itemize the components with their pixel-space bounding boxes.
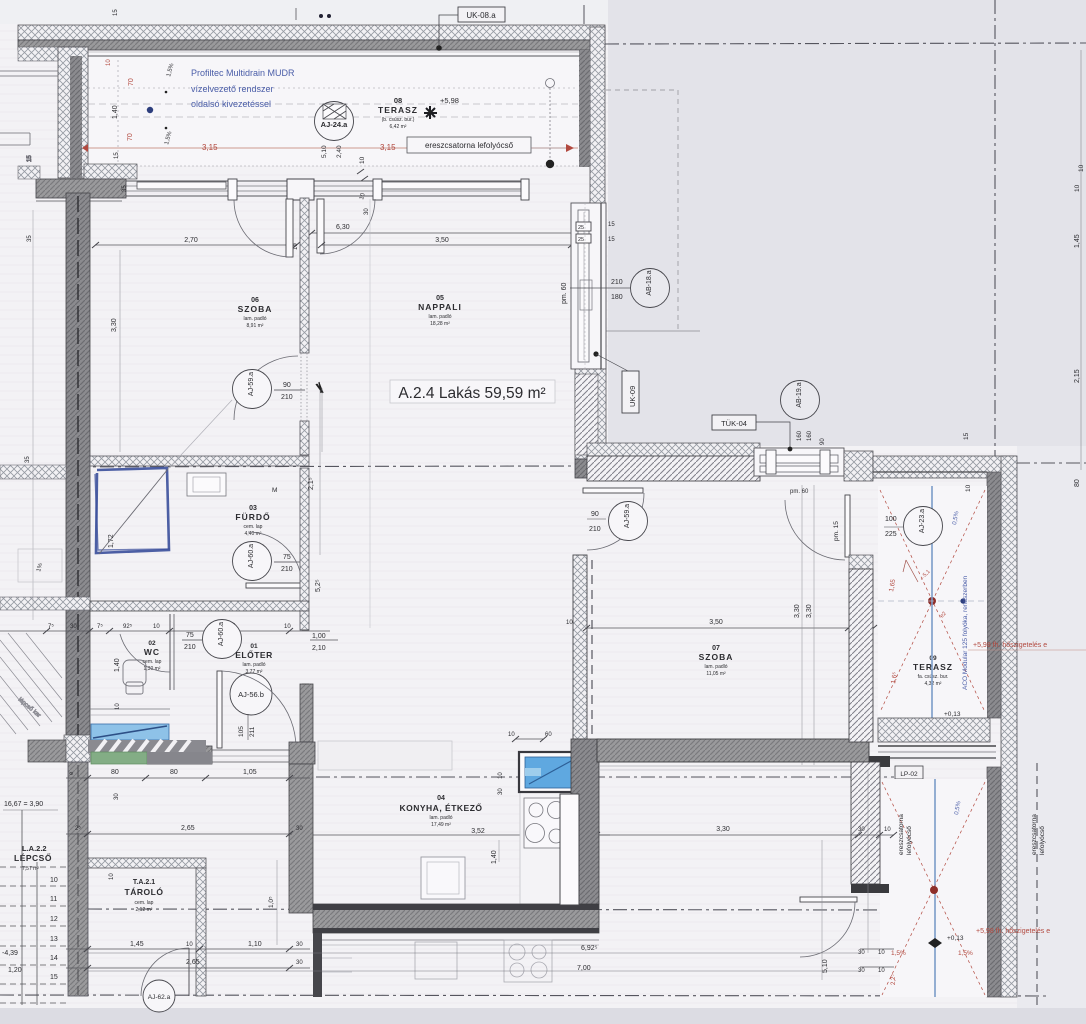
svg-text:10: 10 [878,950,885,956]
svg-text:T.A.2.1: T.A.2.1 [133,879,155,886]
svg-text:1,40: 1,40 [114,658,121,672]
svg-text:TERASZ: TERASZ [378,105,418,115]
svg-text:02: 02 [148,640,156,647]
svg-text:2,65: 2,65 [186,959,200,966]
svg-text:SZOBA: SZOBA [699,652,734,662]
svg-text:ELŐTER: ELŐTER [235,649,272,660]
svg-text:100: 100 [885,516,897,523]
svg-text:pm. 15: pm. 15 [833,521,840,541]
svg-text:10: 10 [359,156,366,164]
svg-text:pm. 60: pm. 60 [790,489,809,495]
svg-text:Profiltec Multidrain MUDR: Profiltec Multidrain MUDR [191,68,295,78]
svg-text:AJ-24.a: AJ-24.a [321,120,349,129]
svg-text:(b. csúsz. bur.): (b. csúsz. bur.) [382,117,415,123]
svg-text:SZOBA: SZOBA [238,304,273,314]
svg-text:fa. csúsz. bur.: fa. csúsz. bur. [918,674,949,680]
svg-text:2⁵: 2⁵ [75,825,81,832]
svg-text:10: 10 [1078,164,1085,172]
svg-text:TERASZ: TERASZ [913,662,953,672]
svg-text:10: 10 [498,772,504,779]
svg-text:2,40: 2,40 [336,145,343,158]
svg-text:3,30: 3,30 [111,318,118,332]
svg-text:1,20: 1,20 [8,967,22,974]
svg-text:70: 70 [127,133,134,141]
svg-text:lefolyócső: lefolyócső [906,826,913,855]
svg-text:160: 160 [797,430,803,441]
svg-text:90: 90 [820,438,826,445]
svg-text:15: 15 [27,155,33,162]
svg-text:A.2.4 Lakás 59,59 m²: A.2.4 Lakás 59,59 m² [398,385,545,402]
svg-text:12: 12 [50,916,58,923]
svg-text:10: 10 [106,59,112,66]
svg-text:pm. 60: pm. 60 [561,282,568,304]
svg-text:2,70: 2,70 [184,237,198,244]
svg-text:35: 35 [25,456,31,463]
svg-text:TÁROLÓ: TÁROLÓ [125,886,164,897]
svg-text:+0,13: +0,13 [947,935,964,942]
svg-text:vízelvezető rendszer: vízelvezető rendszer [191,84,274,94]
svg-text:10: 10 [153,624,160,630]
svg-text:6,92⁵: 6,92⁵ [581,945,598,952]
svg-text:LÉPCSŐ: LÉPCSŐ [14,852,52,863]
svg-text:30: 30 [114,793,120,800]
svg-text:10: 10 [878,968,885,974]
svg-text:05: 05 [436,295,444,302]
svg-text:UK-08.a: UK-08.a [466,11,496,20]
svg-text:210: 210 [184,644,196,651]
svg-text:210: 210 [611,279,623,286]
svg-text:15: 15 [113,9,119,16]
svg-text:ACO Modular 125 folyóka, rends: ACO Modular 125 folyóka, rendszerben [962,575,969,690]
svg-text:7⁵: 7⁵ [97,623,103,630]
svg-text:3,15: 3,15 [202,143,218,152]
svg-text:1,40: 1,40 [112,105,119,119]
svg-text:1,05: 1,05 [243,769,257,776]
svg-text:18,28 m²: 18,28 m² [430,321,450,327]
svg-text:180: 180 [611,294,623,301]
svg-text:15: 15 [608,222,615,228]
svg-text:210: 210 [589,526,601,533]
svg-text:10: 10 [1074,184,1081,192]
svg-text:1,5%: 1,5% [958,950,973,957]
svg-text:210: 210 [281,566,293,573]
svg-text:lefolyócső: lefolyócső [1039,826,1046,855]
svg-text:15: 15 [114,152,120,159]
svg-text:10: 10 [186,942,193,948]
svg-text:3,30: 3,30 [716,826,730,833]
svg-text:11,05 m²: 11,05 m² [706,671,726,677]
svg-text:+5,98 fh. hőszigetelés e: +5,98 fh. hőszigetelés e [976,928,1050,935]
svg-text:30: 30 [364,208,370,215]
svg-text:1,72: 1,72 [108,534,115,548]
svg-text:lam. padló: lam. padló [428,314,451,320]
svg-text:70: 70 [128,78,135,86]
svg-text:7⁵: 7⁵ [48,623,54,630]
svg-text:WC: WC [144,647,160,657]
svg-text:UK-09: UK-09 [628,386,637,407]
svg-text:AJ-59.a: AJ-59.a [624,504,631,528]
svg-text:15: 15 [963,432,970,440]
svg-text:lam. padló: lam. padló [242,662,265,668]
svg-text:10: 10 [293,243,299,250]
svg-text:3,50: 3,50 [435,237,449,244]
svg-text:1,45: 1,45 [1074,234,1081,248]
svg-text:1,0⁵: 1,0⁵ [268,896,275,908]
svg-text:AJ-60.a: AJ-60.a [248,544,255,568]
svg-text:AJ-62.a: AJ-62.a [148,994,171,1001]
svg-text:105: 105 [238,726,245,737]
svg-text:17,49 m²: 17,49 m² [431,822,451,828]
svg-text:35: 35 [122,185,128,192]
svg-text:75: 75 [283,554,291,561]
svg-text:1,5%: 1,5% [891,950,906,957]
svg-text:cem. lap: cem. lap [244,524,263,530]
svg-text:lam. padló: lam. padló [243,316,266,322]
svg-text:25: 25 [578,237,584,243]
svg-text:04: 04 [437,795,445,802]
svg-text:+5,98 fh. hőszigetelés e: +5,98 fh. hőszigetelés e [973,642,1047,649]
svg-text:25: 25 [578,225,584,231]
svg-text:lam. padló: lam. padló [429,815,452,821]
svg-text:30: 30 [498,788,504,795]
svg-text:AJ-60.a: AJ-60.a [218,622,225,646]
svg-text:225: 225 [885,531,897,538]
svg-text:10: 10 [50,877,58,884]
svg-text:2,2⁵: 2,2⁵ [890,974,897,985]
svg-text:2,12 m²: 2,12 m² [136,907,153,913]
svg-text:5,2⁵: 5,2⁵ [315,579,322,592]
svg-text:211: 211 [249,726,256,737]
svg-text:AJ-23.a: AJ-23.a [919,509,926,533]
svg-text:1,45: 1,45 [130,941,144,948]
svg-text:10: 10 [109,873,115,880]
svg-text:03: 03 [249,505,257,512]
svg-text:14: 14 [50,955,58,962]
svg-text:92⁵: 92⁵ [123,623,133,630]
svg-text:-4,39: -4,39 [2,950,18,957]
svg-text:15: 15 [50,974,58,981]
svg-text:3,30: 3,30 [794,604,801,618]
svg-text:3,30: 3,30 [806,604,813,618]
svg-text:30: 30 [70,624,77,630]
svg-text:AJ-59.a: AJ-59.a [248,372,255,396]
svg-text:11: 11 [50,896,57,903]
svg-text:30: 30 [296,826,303,832]
svg-text:10: 10 [965,484,972,492]
svg-text:75: 75 [186,632,194,639]
svg-text:90: 90 [283,382,291,389]
svg-text:3,15: 3,15 [380,143,396,152]
svg-text:ereszcsatorna lefolyócső: ereszcsatorna lefolyócső [425,141,514,150]
svg-text:KONYHA, ÉTKEZŐ: KONYHA, ÉTKEZŐ [399,802,482,813]
svg-text:L.A.2.2: L.A.2.2 [22,844,47,853]
svg-text:ereszcsatorna: ereszcsatorna [1031,814,1038,855]
svg-text:M: M [272,487,277,494]
svg-text:3,52: 3,52 [471,828,485,835]
svg-text:8,91 m²: 8,91 m² [247,323,264,329]
svg-text:10: 10 [284,624,291,630]
svg-text:6,42 m²: 6,42 m² [390,124,407,130]
svg-text:lam. padló: lam. padló [704,664,727,670]
svg-text:FÜRDŐ: FÜRDŐ [235,511,270,522]
svg-text:AJ-56.b: AJ-56.b [238,690,264,699]
svg-text:06: 06 [251,297,259,304]
svg-text:LP-02: LP-02 [900,771,918,778]
svg-text:08: 08 [394,96,402,105]
svg-text:15: 15 [608,237,615,243]
svg-text:TÜK-04: TÜK-04 [721,419,747,428]
svg-text:80: 80 [111,769,119,776]
svg-text:1,40: 1,40 [491,850,498,864]
svg-text:80: 80 [1074,479,1081,487]
svg-text:6,30: 6,30 [336,224,350,231]
svg-text:cem. lap: cem. lap [135,900,154,906]
svg-text:210: 210 [281,394,293,401]
svg-text:16,67 = 3,90: 16,67 = 3,90 [4,801,43,808]
svg-text:13: 13 [50,936,58,943]
svg-text:2,1⁵: 2,1⁵ [308,477,315,490]
svg-text:5,10: 5,10 [321,145,328,158]
svg-text:+0,13: +0,13 [944,711,961,718]
svg-text:10: 10 [884,827,891,833]
svg-text:3,50: 3,50 [709,619,723,626]
svg-text:10: 10 [566,620,573,626]
svg-text:5,10: 5,10 [822,959,829,973]
svg-text:80: 80 [170,769,178,776]
svg-text:AB-18.a: AB-18.a [646,270,653,295]
svg-text:2,65: 2,65 [181,825,195,832]
svg-text:ereszcsatorna: ereszcsatorna [898,814,905,855]
svg-text:1,00: 1,00 [312,633,326,640]
svg-text:NAPPALI: NAPPALI [418,302,462,312]
svg-text:1,10: 1,10 [248,941,262,948]
svg-text:09: 09 [929,655,937,662]
svg-text:35: 35 [27,235,33,242]
svg-text:30: 30 [296,960,303,966]
svg-text:07: 07 [712,645,720,652]
svg-text:10: 10 [508,732,515,738]
svg-text:4,32 m²: 4,32 m² [925,681,942,687]
svg-text:160: 160 [807,430,813,441]
svg-text:2,10: 2,10 [312,645,326,652]
svg-text:30: 30 [296,942,303,948]
svg-text:oldalsó kivezetéssel: oldalsó kivezetéssel [191,99,271,109]
svg-text:+5,98: +5,98 [440,96,459,105]
svg-text:2,15: 2,15 [1074,369,1081,383]
svg-text:AB-19.a: AB-19.a [796,382,803,407]
svg-text:90: 90 [591,511,599,518]
svg-text:01: 01 [250,643,258,650]
